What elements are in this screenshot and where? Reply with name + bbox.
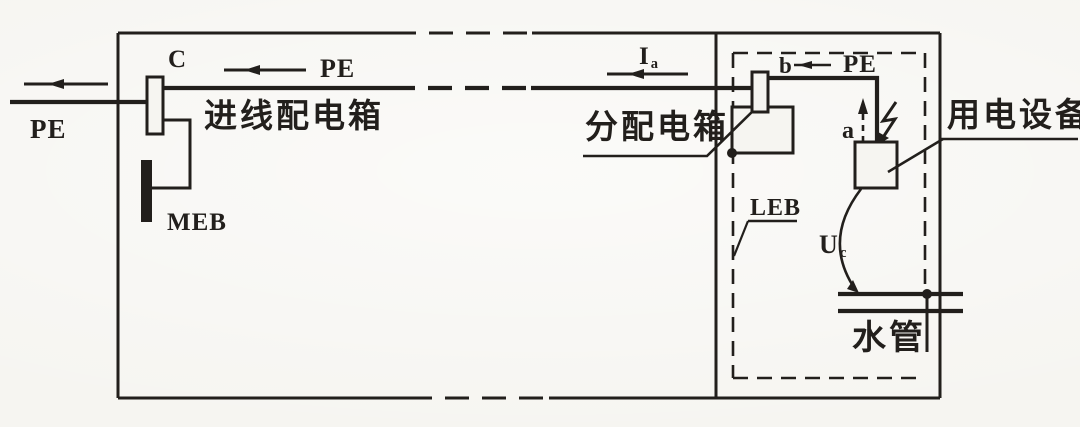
ia-current-arrow [607,69,688,79]
current-direction-arrow-branch [798,61,812,69]
junction-dot-pipe [922,289,932,299]
distribution-box-label: 分配电箱 [585,110,729,143]
fault-current-arrow-a [858,98,868,142]
a-point-label: a [842,119,855,143]
meb-label: MEB [167,210,227,235]
b-terminal-label: b [779,54,793,77]
pe-branch-label: PE [843,52,877,77]
c-terminal-label: C [168,47,187,72]
equipment-box [855,142,897,188]
uc-symbol: U [819,230,839,259]
junction-dot-box [727,148,737,158]
equipment-symbol [855,139,1078,188]
leb-callout [734,221,797,256]
leb-label: LEB [750,196,801,220]
pe-trunk-conductor [163,65,753,88]
b-terminal-busbar [752,72,768,112]
current-direction-arrow-trunk [244,65,260,75]
distribution-box [732,107,793,153]
schematic-linework [0,0,1080,427]
leb-leader [734,221,748,256]
uc-label: Uc [819,232,846,258]
ia-label: Ia [639,44,658,69]
incoming-distribution-box-label: 进线配电箱 [204,99,384,132]
schematic-canvas: PE C PE 进线配电箱 MEB Ia 分配电箱 b PE a 用电设备 LE… [0,0,1080,427]
main-earthing-assembly [141,77,190,222]
equipment-label: 用电设备 [947,98,1080,131]
incoming-pe-conductor [10,79,147,102]
ia-subscript: a [651,56,659,72]
ia-symbol: I [639,43,650,70]
current-direction-arrow-left [48,79,64,89]
pe-incoming-label: PE [30,116,67,143]
meb-terminal-bar [141,160,152,222]
pe-trunk-label: PE [320,56,355,82]
fault-lightning-icon [878,102,896,144]
uc-subscript: c [840,245,848,261]
water-pipe-label: 水管 [852,321,926,355]
c-terminal-busbar [147,77,163,134]
